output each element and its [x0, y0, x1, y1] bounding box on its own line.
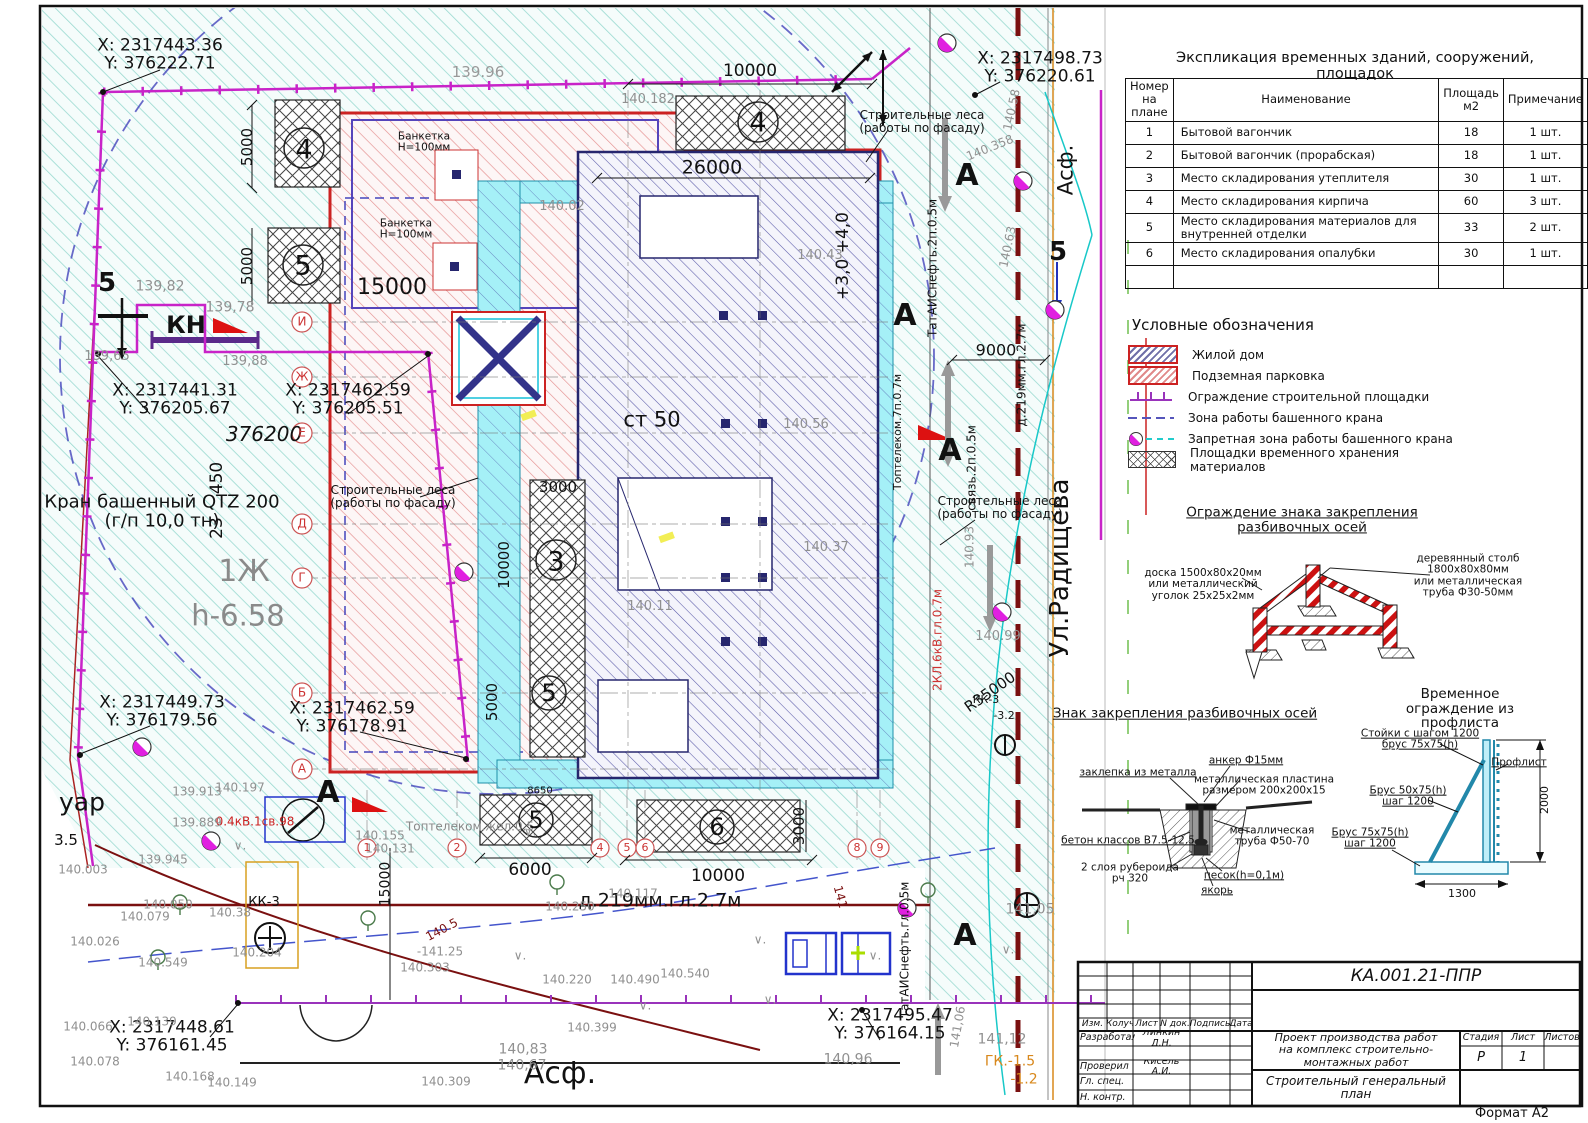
titleblock-stage-value: Р [1460, 1046, 1502, 1070]
table-cell: 5 [1126, 213, 1174, 242]
titleblock-checked-name: Кисель А.И. [1133, 1060, 1190, 1074]
expl-header: Наименование [1173, 79, 1439, 122]
legend-item-crane: Зона работы башенного крана [1128, 407, 1468, 428]
titleblock-koluch: Колуч [1107, 1018, 1133, 1031]
table-cell: 1 шт. [1503, 167, 1587, 190]
titleblock-ncontrol-label: Н. контр. [1078, 1090, 1135, 1106]
legend-item-label: Запретная зона работы башенного крана [1188, 432, 1453, 446]
titleblock-list-col: Лист [1133, 1018, 1160, 1031]
legend-item-label: Жилой дом [1192, 348, 1264, 362]
expl-header: Примечание [1503, 79, 1587, 122]
legend-item-label: Ограждение строительной площадки [1188, 390, 1429, 404]
table-cell: Бытовой вагончик [1173, 121, 1439, 144]
titleblock-listov-header: Листов [1544, 1031, 1580, 1046]
table-cell: Место складирования материалов для внутр… [1173, 213, 1439, 242]
site-cabins [786, 933, 890, 974]
expl-header: Площадь м2 [1439, 79, 1504, 122]
legend: Условные обозначения Жилой домПодземная … [1128, 316, 1468, 470]
titleblock-project-title: Проект производства работ на комплекс ст… [1252, 1031, 1460, 1070]
table-cell: Место складирования кирпича [1173, 190, 1439, 213]
table-cell [1126, 266, 1174, 289]
titleblock-sheet-title: Строительный генеральный план [1252, 1070, 1460, 1106]
table-cell: 6 [1126, 243, 1174, 266]
titleblock-developed-label: Разработал [1078, 1031, 1135, 1046]
titleblock-ndok: N док. [1160, 1018, 1190, 1031]
table-cell: Бытовой вагончик (прорабская) [1173, 144, 1439, 167]
legend-item-dom: Жилой дом [1128, 344, 1468, 365]
table-row: 6Место складирования опалубки301 шт. [1126, 243, 1588, 266]
table-cell: 60 [1439, 190, 1504, 213]
titleblock-data: Дата [1230, 1018, 1252, 1031]
table-cell [1173, 266, 1439, 289]
explication-table: Номер на планеНаименованиеПлощадь м2Прим… [1125, 78, 1588, 289]
residential-building [578, 152, 878, 778]
detail-proflist-fence [1392, 740, 1546, 888]
table-row: 3Место складирования утеплителя301 шт. [1126, 167, 1588, 190]
titleblock-izm: Изм. [1078, 1018, 1107, 1031]
detail-axis-fence [1242, 565, 1430, 678]
table-cell: 33 [1439, 213, 1504, 242]
table-row: 5Место складирования материалов для внут… [1126, 213, 1588, 242]
legend-item-label: Подземная парковка [1192, 369, 1325, 383]
legend-item-store: Площадки временного хранения материалов [1128, 449, 1468, 470]
detail-axis-sign [1082, 766, 1312, 886]
expl-header: Номер на плане [1126, 79, 1174, 122]
titleblock-checked-label: Проверил [1078, 1060, 1135, 1074]
legend-title: Условные обозначения [1132, 316, 1468, 334]
titleblock-developed-name: Линкин Д.Н. [1133, 1031, 1190, 1046]
legend-item-fence: Ограждение строительной площадки [1128, 386, 1468, 407]
table-cell: 1 шт. [1503, 121, 1587, 144]
table-cell: 4 [1126, 190, 1174, 213]
titleblock-list-header: Лист [1502, 1031, 1544, 1046]
table-cell: 2 [1126, 144, 1174, 167]
table-cell: 1 шт. [1503, 243, 1587, 266]
table-row [1126, 266, 1588, 289]
table-cell: 30 [1439, 243, 1504, 266]
table-cell: 1 [1126, 121, 1174, 144]
table-cell: 18 [1439, 121, 1504, 144]
table-cell: 30 [1439, 167, 1504, 190]
titleblock-list-value: 1 [1502, 1046, 1544, 1070]
table-row: 2Бытовой вагончик (прорабская)181 шт. [1126, 144, 1588, 167]
table-cell [1503, 266, 1587, 289]
table-cell [1439, 266, 1504, 289]
legend-item-park: Подземная парковка [1128, 365, 1468, 386]
titleblock-stage-header: Стадия [1460, 1031, 1502, 1046]
table-cell: 1 шт. [1503, 144, 1587, 167]
table-cell: 3 шт. [1503, 190, 1587, 213]
titleblock-podpis: Подпись [1190, 1018, 1230, 1031]
table-cell: 18 [1439, 144, 1504, 167]
table-row: 1Бытовой вагончик181 шт. [1126, 121, 1588, 144]
table-cell: Место складирования утеплителя [1173, 167, 1439, 190]
table-cell: 3 [1126, 167, 1174, 190]
table-row: 4Место складирования кирпича603 шт. [1126, 190, 1588, 213]
table-cell: 2 шт. [1503, 213, 1587, 242]
legend-item-label: Площадки временного хранения материалов [1190, 446, 1468, 474]
table-cell: Место складирования опалубки [1173, 243, 1439, 266]
titleblock-chief-label: Гл. спец. [1078, 1074, 1135, 1090]
legend-item-label: Зона работы башенного крана [1188, 411, 1383, 425]
titleblock-doc-code: КА.001.21-ППР [1252, 962, 1580, 990]
construction-general-plan-sheet: { "sheet": {"format_label": "Формат А2",… [0, 0, 1588, 1123]
